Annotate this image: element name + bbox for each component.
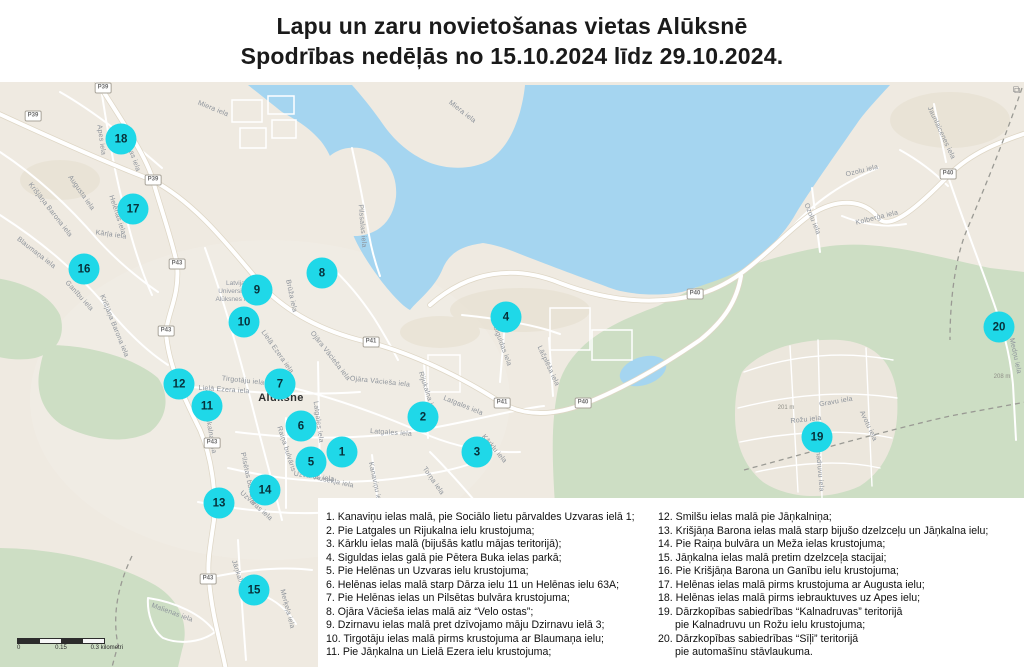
map-marker-16[interactable]: 16 <box>69 254 100 285</box>
map-marker-3[interactable]: 3 <box>462 437 493 468</box>
scale-bar-segments <box>17 638 105 644</box>
road-badge: P43 <box>169 259 186 270</box>
legend-column-1: 1. Kanaviņu ielas malā, pie Sociālo liet… <box>326 511 658 667</box>
scale-label-mid: 0.15 <box>55 645 67 651</box>
legend-item: 18. Helēnas ielas malā pirms iebrauktuve… <box>658 592 1024 606</box>
legend-item: 20. Dārzkopības sabiedrības “Sīļi” terit… <box>658 633 1024 647</box>
road-badge: P40 <box>940 169 957 180</box>
map-marker-15[interactable]: 15 <box>239 575 270 606</box>
legend-item: 14. Pie Raiņa bulvāra un Meža ielas krus… <box>658 538 1024 552</box>
page-title-line1: Lapu un zaru novietošanas vietas Alūksnē <box>0 11 1024 41</box>
legend-item: 5. Pie Helēnas un Uzvaras ielu krustojum… <box>326 565 658 579</box>
map-marker-18[interactable]: 18 <box>106 124 137 155</box>
legend-column-2: 12. Smilšu ielas malā pie Jāņkalniņa; 13… <box>658 511 1024 667</box>
page-title-line2: Spodrības nedēļās no 15.10.2024 līdz 29.… <box>0 41 1024 71</box>
legend-item: 15. Jāņkalna ielas malā pretim dzelzceļa… <box>658 552 1024 566</box>
legend-item: 10. Tirgotāju ielas malā pirms krustojum… <box>326 633 658 647</box>
road-badge: P39 <box>25 111 42 122</box>
legend-item: 19. Dārzkopības sabiedrības “Kalnadruvas… <box>658 606 1024 620</box>
legend-item: 6. Helēnas ielas malā starp Dārza ielu 1… <box>326 579 658 593</box>
legend-item: 1. Kanaviņu ielas malā, pie Sociālo liet… <box>326 511 658 525</box>
legend-item: 8. Ojāra Vācieša ielas malā aiz “Velo os… <box>326 606 658 620</box>
scale-label-end: 0.3 kilometri <box>91 645 123 651</box>
legend-item-continuation: pie Kalnadruvu un Rožu ielu krustojuma; <box>658 619 1024 633</box>
map-marker-11[interactable]: 11 <box>192 391 223 422</box>
scale-segment <box>18 639 40 643</box>
legend-item: 11. Pie Jāņkalna un Lielā Ezera ielu kru… <box>326 646 658 660</box>
map-marker-5[interactable]: 5 <box>296 447 327 478</box>
legend: 1. Kanaviņu ielas malā, pie Sociālo liet… <box>318 498 1024 667</box>
road-badge: P39 <box>145 175 162 186</box>
scale-label-start: 0 <box>17 645 20 651</box>
legend-item: 3. Kārklu ielas malā (bijušās katlu māja… <box>326 538 658 552</box>
map-marker-9[interactable]: 9 <box>242 275 273 306</box>
road-badge: P41 <box>494 398 511 409</box>
legend-item: 17. Helēnas ielas malā pirms krustojuma … <box>658 579 1024 593</box>
legend-item-continuation: pie automašīnu stāvlaukuma. <box>658 646 1024 660</box>
legend-item: 4. Siguldas ielas galā pie Pētera Buka i… <box>326 552 658 566</box>
legend-item: 7. Pie Helēnas ielas un Pilsētas bulvāra… <box>326 592 658 606</box>
map-marker-4[interactable]: 4 <box>491 302 522 333</box>
legend-item: 16. Pie Krišjāņa Barona un Ganību ielu k… <box>658 565 1024 579</box>
map-marker-12[interactable]: 12 <box>164 369 195 400</box>
map-marker-19[interactable]: 19 <box>802 422 833 453</box>
road-badge: P43 <box>200 574 217 585</box>
scale-segment <box>61 639 83 643</box>
road-badge: P40 <box>687 289 704 300</box>
map-marker-2[interactable]: 2 <box>408 402 439 433</box>
map-marker-14[interactable]: 14 <box>250 475 281 506</box>
map-marker-10[interactable]: 10 <box>229 307 260 338</box>
legend-item: 12. Smilšu ielas malā pie Jāņkalniņa; <box>658 511 1024 525</box>
legend-item: 13. Krišjāņa Barona ielas malā starp bij… <box>658 525 1024 539</box>
road-badge: P43 <box>204 438 221 449</box>
scale-segment <box>83 639 105 643</box>
road-badge: P43 <box>158 326 175 337</box>
map-marker-7[interactable]: 7 <box>265 369 296 400</box>
road-badge: P40 <box>575 398 592 409</box>
legend-item: 9. Dzirnavu ielas malā pret dzīvojamo mā… <box>326 619 658 633</box>
elevation-label: 208 m <box>994 374 1011 380</box>
map-marker-20[interactable]: 20 <box>984 312 1015 343</box>
map-marker-8[interactable]: 8 <box>307 258 338 289</box>
legend-item: 2. Pie Latgales un Rijukalna ielu krusto… <box>326 525 658 539</box>
scale-segment <box>40 639 62 643</box>
poster: Miera iela Miera iela Apes iela Helēnas … <box>0 0 1024 667</box>
map-marker-17[interactable]: 17 <box>118 194 149 225</box>
scale-bar: 0 0.15 0.3 kilometri <box>17 638 105 654</box>
elevation-label: 201 m <box>778 405 795 411</box>
map-marker-1[interactable]: 1 <box>327 437 358 468</box>
map-marker-13[interactable]: 13 <box>204 488 235 519</box>
expand-icon[interactable]: ⧉ <box>1013 86 1020 96</box>
road-badge: P39 <box>95 83 112 94</box>
title-block: Lapu un zaru novietošanas vietas Alūksnē… <box>0 0 1024 82</box>
road-badge: P41 <box>363 337 380 348</box>
map-marker-6[interactable]: 6 <box>286 411 317 442</box>
